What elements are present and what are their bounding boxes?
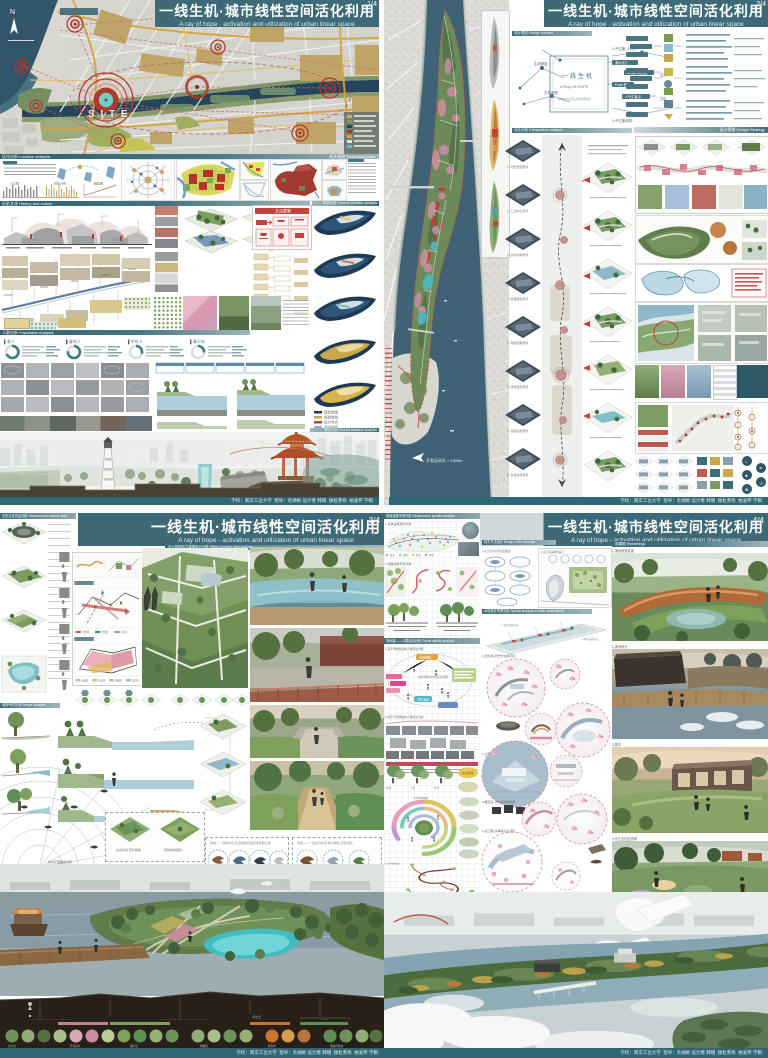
svg-text:厕所: 厕所 <box>403 553 408 557</box>
svg-text:次要流线: 次要流线 <box>102 629 109 634</box>
svg-text:1900s: 1900s <box>4 293 13 297</box>
svg-text:1.8米 栈道标高: 1.8米 栈道标高 <box>582 637 599 641</box>
svg-text:N: N <box>10 9 15 16</box>
svg-text:1. 历史遗迹现状: 1. 历史遗迹现状 <box>507 164 528 169</box>
svg-text:商亭: 商亭 <box>416 553 421 557</box>
svg-text:2. 工业码头现状: 2. 工业码头现状 <box>507 208 528 213</box>
svg-text:一线生机: 一线生机 <box>562 72 594 80</box>
svg-text:4.迎江路·水岸码头生活区: 4.迎江路·水岸码头生活区 <box>482 828 516 833</box>
svg-text:8. 交通系统现状: 8. 交通系统现状 <box>507 472 528 477</box>
svg-text:城市绿地中市民活动圈: 城市绿地中市民活动圈 <box>418 674 448 679</box>
svg-text:S I T E: S I T E <box>88 109 129 120</box>
svg-text:A Ray Of HOPE: A Ray Of HOPE <box>560 84 589 89</box>
svg-text:1960s: 1960s <box>70 279 79 283</box>
svg-text:就业分布: 就业分布 <box>54 182 66 186</box>
svg-text:▌青少年: ▌青少年 <box>190 338 205 345</box>
svg-text:办公组团: 办公组团 <box>98 678 105 683</box>
svg-text:2.水上码头规划设计: 2.水上码头规划设计 <box>541 550 564 554</box>
svg-text:主要流线: 主要流线 <box>82 629 89 634</box>
svg-text:朴树: 朴树 <box>434 786 440 790</box>
svg-text:1.水上码头平面演变推敲: 1.水上码头平面演变推敲 <box>482 549 511 553</box>
svg-text:1.纪念林·历史文化展示区: 1.纪念林·历史文化展示区 <box>482 653 516 658</box>
svg-text:游禽——湿地水鸟 及沿线栖息适应性观察记录: 游禽——湿地水鸟 及沿线栖息适应性观察记录 <box>210 840 271 845</box>
svg-text:乌桕: 乌桕 <box>410 786 416 790</box>
svg-text:3.樱花谷·滨水休闲游憩区: 3.樱花谷·滨水休闲游憩区 <box>482 799 516 804</box>
svg-text:趋势图: 趋势图 <box>94 182 103 186</box>
svg-text:生态修复: 生态修复 <box>462 771 474 775</box>
svg-text:规划植被结构: 规划植被结构 <box>164 847 182 852</box>
svg-text:4. 植被群落现状: 4. 植被群落现状 <box>507 296 528 301</box>
svg-text:2.道路关键节点分析: 2.道路关键节点分析 <box>385 561 412 566</box>
svg-text:垂柳: 垂柳 <box>386 786 392 790</box>
svg-text:现状岸线: 现状岸线 <box>324 410 338 415</box>
svg-text:照明: 照明 <box>429 553 434 557</box>
svg-text:3.游线组织: 3.游线组织 <box>385 862 400 865</box>
svg-text:文化重塑: 文化重塑 <box>544 90 558 95</box>
svg-text:生态修复: 生态修复 <box>534 61 548 66</box>
svg-text:♣: ♣ <box>745 473 748 478</box>
svg-text:活动串联: 活动串联 <box>419 654 431 659</box>
svg-text:3. 滨水驳岸现状: 3. 滨水驳岸现状 <box>507 252 528 257</box>
svg-text:▌中年人: ▌中年人 <box>128 338 143 345</box>
svg-text:▌老人: ▌老人 <box>4 338 15 345</box>
svg-text:滨水空间: 滨水空间 <box>132 678 139 683</box>
svg-text:1930s: 1930s <box>40 285 49 289</box>
svg-text:2.基于不同场地的人群活动分析: 2.基于不同场地的人群活动分析 <box>385 715 424 719</box>
svg-text:7. 基础设施现状: 7. 基础设施现状 <box>507 428 528 433</box>
svg-text:城市线性空间活化利用设计: 城市线性空间活化利用设计 <box>558 97 592 101</box>
svg-text:驿站: 驿站 <box>390 553 395 557</box>
svg-text:生态基底 现状植被: 生态基底 现状植被 <box>116 847 141 852</box>
svg-text:涉禽——一线活力补给 候鸟驿站 迁徙通道: 涉禽——一线活力补给 候鸟驿站 迁徙通道 <box>297 840 353 845</box>
svg-text:滨水活动: 滨水活动 <box>417 697 429 702</box>
svg-text:▌青年人: ▌青年人 <box>66 338 81 345</box>
svg-text:⚓: ⚓ <box>759 480 764 485</box>
svg-text:文化要素: 文化要素 <box>275 208 291 214</box>
svg-text:活力节点: 活力节点 <box>324 420 338 425</box>
svg-text:湿地泡: 湿地泡 <box>252 1014 261 1019</box>
svg-text:四季活动圈层: 四季活动圈层 <box>414 796 429 800</box>
svg-text:1.基体设施现状分析: 1.基体设施现状分析 <box>385 521 412 526</box>
svg-text:活动节点: 活动节点 <box>121 629 128 634</box>
svg-text:人口数: 人口数 <box>10 182 19 186</box>
svg-text:绿地组团: 绿地组团 <box>115 678 122 683</box>
svg-text:5. 场地肌理现状: 5. 场地肌理现状 <box>507 340 528 345</box>
svg-text:1980s: 1980s <box>100 273 109 277</box>
svg-text:开发区码头 ↑ 1800m: 开发区码头 ↑ 1800m <box>426 457 463 463</box>
svg-text:1.5米 防洪标高: 1.5米 防洪标高 <box>502 623 519 627</box>
svg-text:2000s: 2000s <box>128 267 137 271</box>
svg-text:1.基于场地现状的人群活动分析: 1.基于场地现状的人群活动分析 <box>385 647 424 651</box>
svg-text:商业组团: 商业组团 <box>81 678 88 683</box>
svg-text:6. 建筑遗存现状: 6. 建筑遗存现状 <box>507 384 528 389</box>
svg-text:☂: ☂ <box>759 466 763 471</box>
svg-text:规划岸线: 规划岸线 <box>324 415 338 420</box>
